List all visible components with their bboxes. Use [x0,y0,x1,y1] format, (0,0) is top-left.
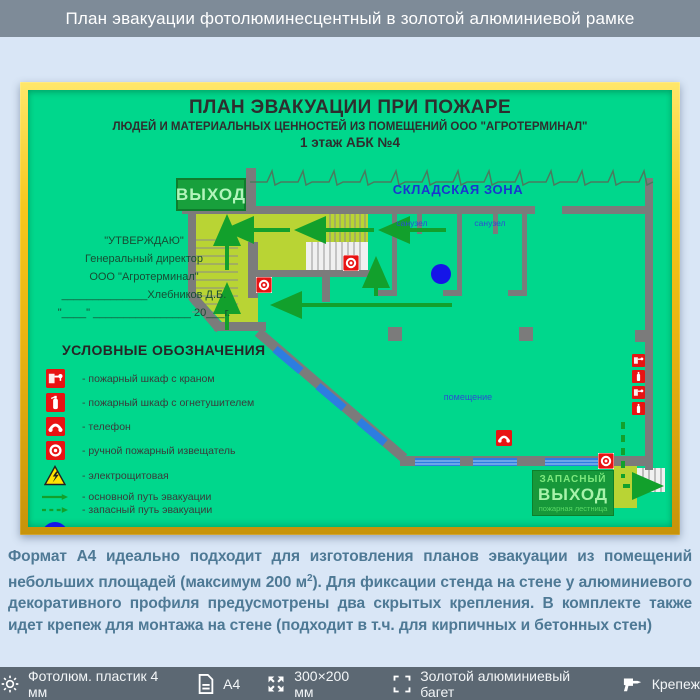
legend-item-label: - пожарный шкаф с огнетушителем [82,397,254,409]
fire-cabinet-extinguisher-icon [42,393,68,412]
evacuation-plan: ПЛАН ЭВАКУАЦИИ ПРИ ПОЖАРЕ ЛЮДЕЙ И МАТЕРИ… [28,90,672,527]
electrical-room-icon [42,465,68,486]
emergency-exit-line3: пожарная лестница [533,505,613,513]
approval-block: "УТВЕРЖДАЮ" Генеральный директор ООО "Аг… [36,232,252,322]
main-route-arrow-icon [42,492,68,502]
gear-icon [0,674,20,694]
fire-cabinet-crane-icon [42,369,68,388]
spec-bar: Фотолюм. пластик 4 мм А4 300×200 мм Золо… [0,667,700,700]
legend-item: - пожарный шкаф с огнетушителем [42,393,302,412]
exit-sign: ВЫХОД [176,178,246,211]
legend-item-label: - основной путь эвакуации [82,491,211,503]
manual-fire-alarm-icon [343,255,359,276]
plan-title-block: ПЛАН ЭВАКУАЦИИ ПРИ ПОЖАРЕ ЛЮДЕЙ И МАТЕРИ… [28,97,672,150]
backup-route-arrow-icon [42,505,68,515]
phone-icon [42,417,68,436]
legend-item: - вы находитесь здесь [42,522,302,527]
approval-line: ООО "Агротерминал" [36,268,252,286]
spec-format: А4 [197,674,240,694]
you-are-here-marker [431,264,451,284]
spec-label: А4 [223,676,240,692]
page-title: План эвакуации фотолюминесцентный в золо… [0,0,700,37]
legend-item-label: - телефон [82,421,131,433]
emergency-exit-line1: ЗАПАСНЫЙ [533,475,613,485]
spec-frame: Золотой алюминиевый багет [392,668,595,700]
legend-item: - основной путь эвакуации [42,491,302,503]
legend-item: - ручной пожарный извещатель [42,441,302,460]
plan-floor-label: 1 этаж АБК №4 [28,135,672,150]
product-card: { "header": { "title": "План эвакуации ф… [0,0,700,700]
manual-fire-alarm-icon [598,453,614,474]
drill-icon [622,674,644,694]
spec-label: Золотой алюминиевый багет [420,668,595,700]
legend-item-label: - электрощитовая [82,470,169,482]
storage-zone-label: СКЛАДСКАЯ ЗОНА [358,182,558,197]
spec-label: 300×200 мм [294,668,366,700]
approval-line: "УТВЕРЖДАЮ" [36,232,252,250]
legend-item-label: - пожарный шкаф с краном [82,373,215,385]
product-description: Формат А4 идеально подходит для изготовл… [8,546,692,636]
spec-mounting: Крепеж [622,674,700,694]
spec-size: 300×200 мм [266,668,366,700]
document-icon [197,674,215,694]
phone-icon [496,430,512,451]
you-are-here-icon [42,522,68,527]
plan-title: ПЛАН ЭВАКУАЦИИ ПРИ ПОЖАРЕ [28,97,672,119]
emergency-exit-line2: ВЫХОД [533,486,613,503]
legend-title: УСЛОВНЫЕ ОБОЗНАЧЕНИЯ [62,342,302,358]
legend-item-label: - запасный путь эвакуации [82,504,212,516]
legend-item-label: - ручной пожарный извещатель [82,445,236,457]
manual-fire-alarm-icon [256,277,272,298]
gold-aluminium-frame: ПЛАН ЭВАКУАЦИИ ПРИ ПОЖАРЕ ЛЮДЕЙ И МАТЕРИ… [20,82,680,535]
emergency-exit-sign: ЗАПАСНЫЙ ВЫХОД пожарная лестница [532,470,614,516]
legend-item: - телефон [42,417,302,436]
spec-label: Фотолюм. пластик 4 мм [28,668,171,700]
approval-line: Генеральный директор [36,250,252,268]
room-label: помещение [428,392,508,402]
frame-corners-icon [392,674,412,694]
spec-material: Фотолюм. пластик 4 мм [0,668,171,700]
manual-fire-alarm-icon [42,441,68,460]
legend-item: - запасный путь эвакуации [42,504,302,516]
plan-subtitle: ЛЮДЕЙ И МАТЕРИАЛЬНЫХ ЦЕННОСТЕЙ ИЗ ПОМЕЩЕ… [28,121,672,133]
legend-item: - пожарный шкаф с краном [42,369,302,388]
approval-line: "____" ________________ 20___г. [36,304,252,322]
bathroom-label: санузел [392,218,432,228]
resize-icon [266,674,286,694]
spec-label: Крепеж [652,676,700,692]
bathroom-label: санузел [470,218,510,228]
approval-line: ______________Хлебников Д.Б. [36,286,252,304]
legend-item: - электрощитовая [42,465,302,486]
fire-cabinet-extinguisher-icon [632,402,645,420]
legend: УСЛОВНЫЕ ОБОЗНАЧЕНИЯ - пожарный шкаф с к… [42,342,302,527]
